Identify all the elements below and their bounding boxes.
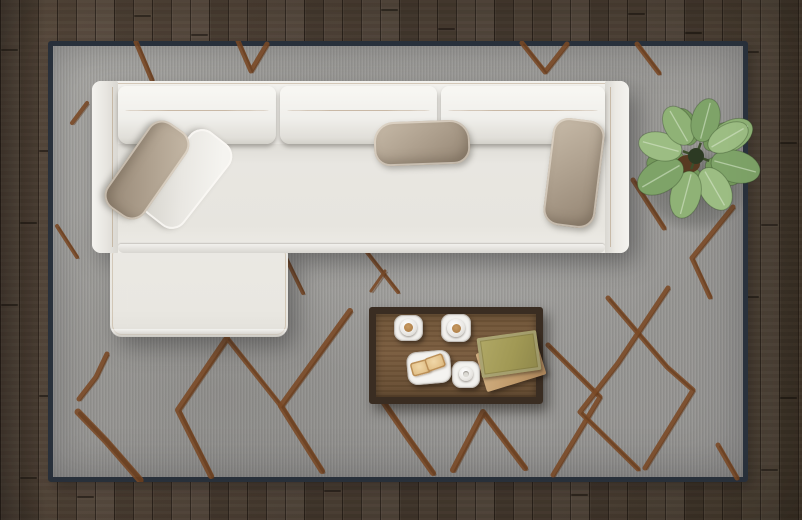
floor-plank-joint	[1, 304, 18, 306]
toast-slice-2	[424, 353, 447, 372]
floor-plank-joint	[438, 28, 455, 30]
rug-pattern-stroke	[548, 345, 600, 475]
plant-center	[688, 148, 704, 164]
rug-pattern-stroke-shade	[639, 46, 661, 75]
floor-plank-joint	[77, 496, 94, 498]
living-room-top-view	[0, 0, 802, 520]
espresso-cup	[452, 361, 480, 388]
floor-plank-joint	[20, 477, 37, 479]
floor-plank-joint	[1, 49, 18, 51]
floor-plank-joint	[324, 490, 341, 492]
floor-plank-joint	[628, 13, 645, 15]
toast-plate	[406, 349, 453, 386]
coffee-cup-1	[394, 315, 423, 341]
rug-pattern-stroke	[136, 42, 152, 80]
sectional-sofa	[92, 81, 629, 337]
floor-plank-joint	[571, 494, 588, 496]
sofa-left-arm	[92, 81, 118, 253]
rug-pattern-stroke	[57, 226, 77, 257]
potted-plant	[626, 88, 766, 226]
rug-pattern-stroke	[72, 103, 87, 123]
rug-pattern-stroke-shade	[229, 340, 283, 408]
floor-plank-joint	[134, 15, 151, 17]
coffee-cup-2	[441, 314, 471, 342]
rug-pattern-stroke-shade	[138, 44, 154, 82]
floor-plank-joint	[780, 142, 797, 144]
taupe-pillow-center	[373, 119, 470, 166]
rug-pattern-stroke-shade	[59, 228, 79, 259]
rug-pattern-stroke-shade	[80, 414, 142, 482]
rug-pattern-stroke-shade	[550, 347, 602, 477]
floor-plank-joint	[761, 469, 778, 471]
floor-plank-joint	[685, 32, 702, 34]
green-book	[477, 330, 542, 378]
floor-plank-joint	[381, 9, 398, 11]
floor-plank-joint	[20, 222, 37, 224]
floor-plank-joint	[191, 34, 208, 36]
rug-pattern-stroke	[79, 354, 107, 399]
rug-pattern-stroke-shade	[384, 402, 435, 475]
rug-pattern-stroke-shade	[720, 447, 739, 480]
chaise-extension	[110, 250, 288, 337]
coffee-table	[369, 307, 543, 404]
floor-plank-joint	[780, 397, 797, 399]
